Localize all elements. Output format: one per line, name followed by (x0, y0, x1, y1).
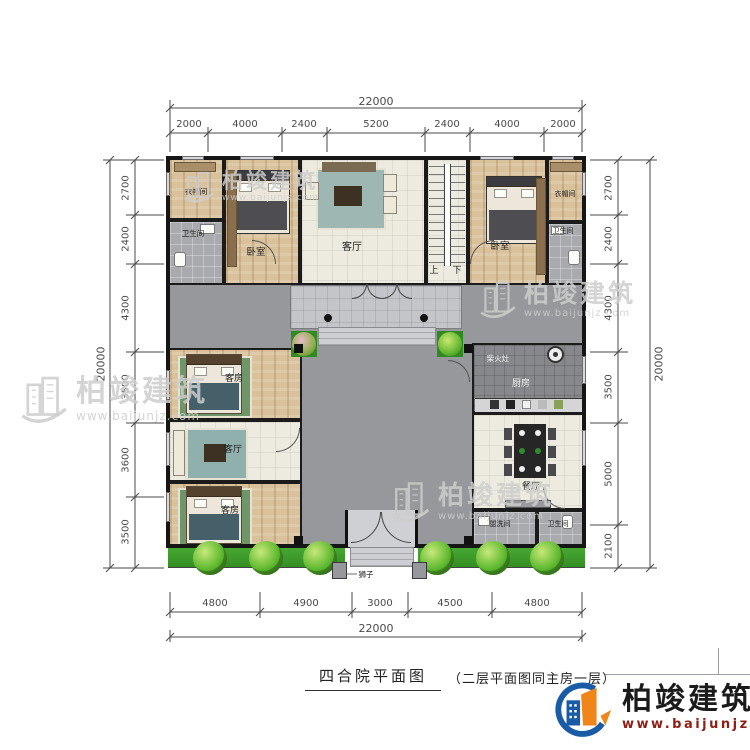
label-guest-west1: 客房 (225, 371, 243, 384)
window (240, 156, 274, 160)
chair-icon (504, 464, 512, 476)
dim-top-seg-5: 4000 (494, 119, 519, 130)
bed-graphic (186, 354, 242, 414)
drawing-title: 四合院平面图 (305, 665, 441, 691)
dim-bottom-seg-1: 4900 (293, 598, 318, 609)
dim-top-seg-3: 5200 (363, 119, 388, 130)
wardrobe-graphic (536, 178, 546, 275)
entrance-steps (350, 547, 414, 567)
porch-column (324, 314, 332, 322)
label-bathroom-tl: 卫生间 (182, 228, 205, 239)
sheet-border-line (604, 674, 750, 675)
stone-lion-icon (412, 562, 427, 579)
dim-right-seg-1: 2400 (604, 226, 615, 251)
dim-left-seg-5: 3500 (121, 519, 132, 544)
appliance-icon (506, 400, 515, 409)
window (582, 172, 586, 196)
dim-top-seg-0: 2000 (176, 119, 201, 130)
dim-bottom-seg-2: 3000 (367, 598, 392, 609)
chair-icon (504, 446, 512, 458)
floorplan-canvas: 22000 2000 4000 2400 5200 2400 4000 2000… (0, 0, 750, 750)
label-cloakroom-tl: 衣帽间 (185, 186, 208, 197)
plate-icon (519, 466, 525, 472)
sideboard-graphic (505, 500, 551, 508)
brand-name: 柏竣建筑 (622, 685, 750, 715)
plate-icon (535, 466, 541, 472)
brand-logo-icon (552, 680, 614, 740)
tree-icon (249, 541, 283, 575)
dim-bottom-seg-4: 4800 (524, 598, 549, 609)
plate-icon (519, 448, 525, 454)
dim-bottom-seg-3: 4500 (437, 598, 462, 609)
label-bathroom-br: 卫生间 (548, 519, 569, 529)
column (464, 536, 473, 545)
label-bedroom-tr: 卧室 (490, 238, 509, 252)
plate-icon (535, 448, 541, 454)
wardrobe-graphic (227, 170, 237, 267)
label-cloakroom-tr: 衣帽间 (555, 189, 576, 199)
window (182, 156, 204, 160)
armchair-graphic (305, 182, 319, 200)
bed-graphic (486, 176, 542, 244)
window (480, 156, 514, 160)
label-wood-stove: 柴火灶 (487, 353, 510, 364)
dim-right-seg-0: 2700 (604, 175, 615, 200)
coffee-table-graphic (334, 186, 362, 206)
appliance-icon (554, 400, 563, 409)
dim-bottom-seg-0: 4800 (202, 598, 227, 609)
dim-left-seg-1: 2400 (121, 226, 132, 251)
dim-bottom-total: 22000 (359, 622, 394, 635)
brand-url: www.baijunjz.com (622, 715, 750, 736)
sheet-border-line (718, 648, 719, 675)
dim-left-seg-4: 3600 (121, 447, 132, 472)
stair-rail (444, 164, 451, 266)
dim-right-total: 20000 (653, 347, 666, 382)
dim-top-seg-2: 2400 (291, 119, 316, 130)
label-guest-west2: 客房 (221, 503, 239, 516)
dim-top-seg-1: 4000 (232, 119, 257, 130)
plate-icon (519, 430, 525, 436)
dim-top-seg-6: 2000 (550, 119, 575, 130)
armchair-graphic (383, 196, 397, 214)
label-stairs-down: 下 (452, 263, 461, 276)
dim-left-total: 20000 (95, 347, 108, 382)
bed-graphic (230, 170, 290, 234)
closet-graphic (174, 162, 216, 172)
label-stone-lion: 狮子 (359, 569, 374, 580)
appliance-icon (538, 400, 547, 409)
window (582, 430, 586, 466)
appliance-icon (490, 400, 499, 409)
porch-steps (318, 327, 436, 346)
window (166, 432, 170, 466)
stone-lion-icon (332, 562, 347, 579)
tree-icon (476, 541, 510, 575)
dim-left-seg-0: 2700 (121, 175, 132, 200)
brand-logo: 柏竣建筑 www.baijunjz.com (552, 680, 750, 740)
toilet-icon (174, 252, 186, 267)
closet-graphic (550, 162, 584, 172)
dim-top-total: 22000 (359, 95, 394, 108)
dim-right-seg-4: 5000 (604, 461, 615, 486)
tree-icon (530, 541, 564, 575)
chair-icon (548, 428, 556, 440)
plant-icon (438, 332, 462, 356)
column (464, 344, 473, 353)
column (294, 536, 303, 545)
label-kitchen: 厨房 (512, 376, 530, 389)
label-dining: 餐厅 (522, 479, 540, 492)
appliance-icon (522, 400, 531, 409)
label-living-west: 客厅 (224, 442, 242, 455)
coffee-table-graphic (204, 444, 226, 462)
chair-icon (548, 446, 556, 458)
window (166, 492, 170, 522)
label-bathroom-tr: 卫生间 (553, 226, 574, 236)
dim-left-seg-3: 3500 (121, 374, 132, 399)
dim-right-seg-3: 3500 (604, 374, 615, 399)
stove-dot (553, 352, 558, 357)
dim-top-seg-4: 2400 (434, 119, 459, 130)
column (294, 344, 303, 353)
label-washroom: 盥洗间 (490, 519, 511, 529)
chair-icon (548, 464, 556, 476)
sink-icon (478, 516, 490, 526)
tree-icon (193, 541, 227, 575)
porch-column (420, 314, 428, 322)
dim-right-seg-5: 2100 (604, 533, 615, 558)
label-stairs-up: 上 (429, 263, 438, 276)
window (552, 156, 574, 160)
toilet-icon (568, 250, 580, 265)
sofa-graphic (173, 430, 185, 476)
armchair-graphic (383, 174, 397, 192)
label-living-top: 客厅 (342, 238, 362, 253)
sofa-graphic (322, 162, 376, 172)
dim-right-seg-2: 4300 (604, 295, 615, 320)
window (166, 370, 170, 400)
label-bedroom-tl: 卧室 (246, 244, 265, 258)
plate-icon (535, 430, 541, 436)
window (582, 356, 586, 384)
window (166, 172, 170, 196)
chair-icon (504, 428, 512, 440)
dim-left-seg-2: 4300 (121, 295, 132, 320)
